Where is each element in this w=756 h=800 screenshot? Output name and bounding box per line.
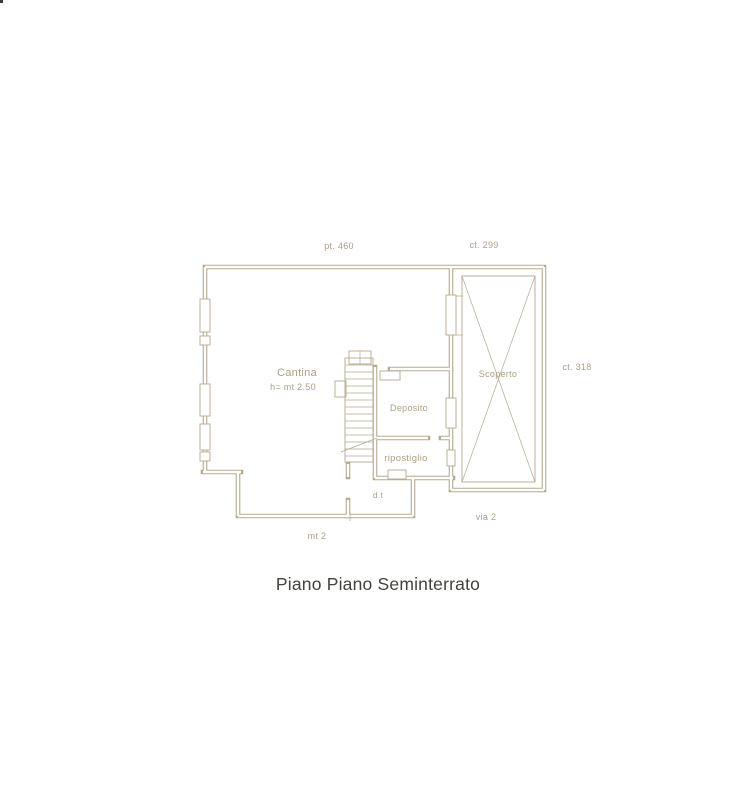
wall-node-scoperto <box>447 450 455 466</box>
room-label-dt: d.t <box>373 490 384 500</box>
room-height-cantina: h= mt 2.50 <box>270 382 316 392</box>
wall-node-left-2 <box>200 452 210 461</box>
wall-node-left-1 <box>200 336 210 345</box>
door-leaf-dt <box>388 470 406 479</box>
door-leaf-deposito <box>380 371 400 380</box>
window-left-3 <box>200 424 210 450</box>
staircase-side-landing <box>335 381 346 397</box>
window-scoperto-wall-2 <box>446 398 456 428</box>
scoperto-cross-area <box>451 276 535 482</box>
interior-walls <box>348 367 451 516</box>
dimension-top-left: pt. 460 <box>324 241 354 251</box>
room-label-ripostiglio: ripostiglio <box>384 453 427 464</box>
scanned-floor-plan-page: Cantina h= mt 2.50 Deposito ripostiglio … <box>0 0 756 800</box>
window-left-1 <box>200 299 210 332</box>
floor-plan-drawing: Cantina h= mt 2.50 Deposito ripostiglio … <box>0 0 756 800</box>
dimension-bottom-right: via 2 <box>476 512 497 522</box>
window-left-2 <box>200 384 210 416</box>
staircase-outline <box>345 358 373 462</box>
room-label-cantina: Cantina <box>277 367 318 379</box>
room-label-deposito: Deposito <box>390 403 428 413</box>
staircase-break-line <box>341 438 377 452</box>
dimension-right: ct. 318 <box>562 362 591 372</box>
dimension-bottom-left: mt 2 <box>308 531 327 541</box>
walls-outer <box>203 267 544 516</box>
window-scoperto-wall-1 <box>446 295 456 335</box>
staircase-treads <box>345 365 373 456</box>
dimension-top-right: ct. 299 <box>469 240 498 250</box>
staircase <box>335 351 377 462</box>
scoperto-x-cross <box>462 276 535 482</box>
room-label-scoperto: Scoperto <box>479 369 517 379</box>
floor-plan-caption: Piano Piano Seminterrato <box>0 574 756 595</box>
